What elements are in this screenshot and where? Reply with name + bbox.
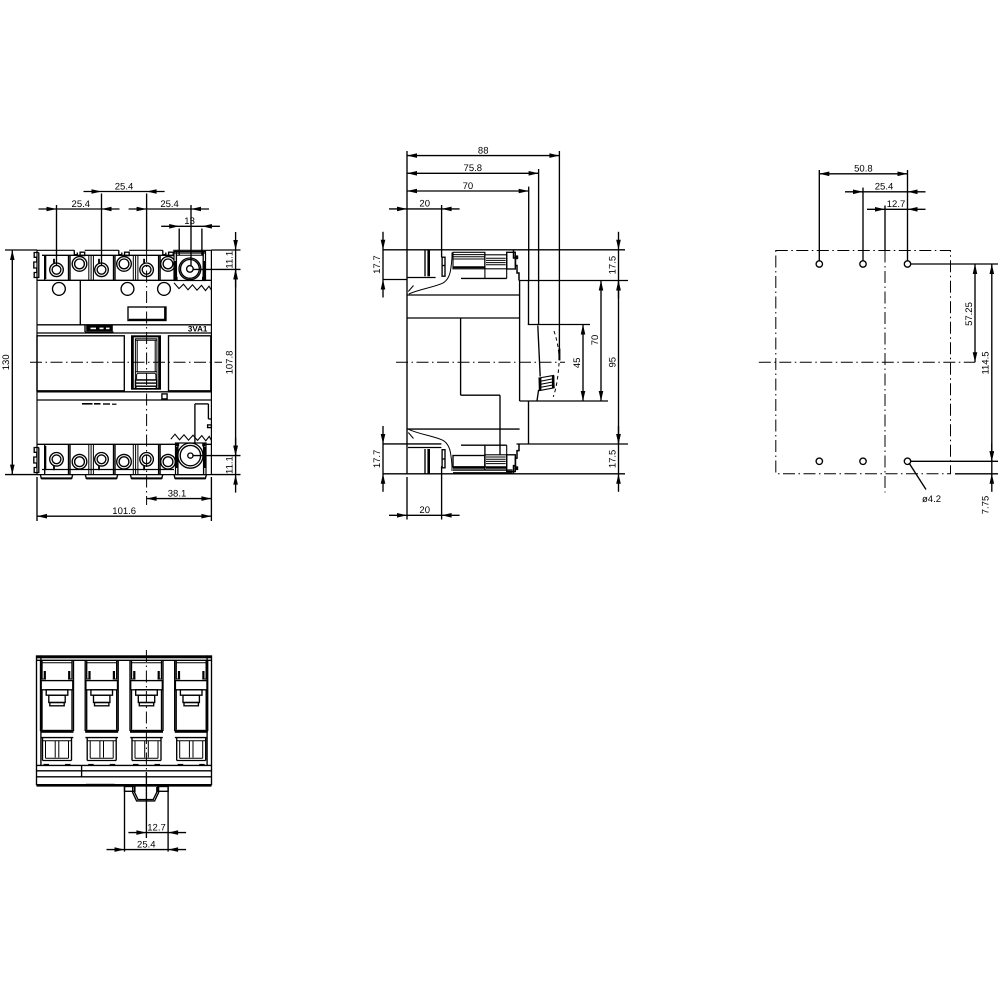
svg-text:25.4: 25.4 — [72, 199, 91, 210]
svg-text:130: 130 — [1, 354, 12, 370]
svg-text:11.1: 11.1 — [224, 456, 235, 474]
svg-text:25.4: 25.4 — [115, 181, 134, 192]
svg-text:45: 45 — [572, 358, 583, 369]
svg-text:ø4.2: ø4.2 — [922, 494, 941, 505]
svg-text:20: 20 — [419, 505, 430, 516]
svg-text:7.75: 7.75 — [981, 496, 992, 515]
svg-text:13: 13 — [184, 216, 195, 227]
svg-text:107.8: 107.8 — [224, 351, 235, 375]
svg-text:101.6: 101.6 — [112, 506, 136, 517]
svg-text:57.25: 57.25 — [964, 302, 975, 326]
svg-text:11.1: 11.1 — [224, 251, 235, 269]
svg-text:17.5: 17.5 — [607, 256, 618, 275]
svg-text:70: 70 — [463, 181, 474, 192]
svg-text:114.5: 114.5 — [981, 351, 992, 374]
svg-text:95: 95 — [607, 357, 618, 368]
svg-text:17.7: 17.7 — [372, 255, 383, 274]
svg-text:12.7: 12.7 — [147, 822, 166, 833]
svg-text:25.4: 25.4 — [160, 199, 179, 210]
svg-text:17.7: 17.7 — [372, 450, 383, 469]
svg-text:3VA1: 3VA1 — [188, 325, 208, 334]
svg-text:75.8: 75.8 — [464, 163, 483, 174]
svg-text:25.4: 25.4 — [875, 182, 894, 193]
svg-text:17.5: 17.5 — [607, 450, 618, 469]
svg-text:70: 70 — [590, 335, 601, 346]
svg-text:88: 88 — [478, 145, 489, 156]
svg-text:50.8: 50.8 — [854, 164, 873, 175]
svg-text:25.4: 25.4 — [137, 839, 156, 850]
svg-text:12.7: 12.7 — [887, 199, 906, 210]
svg-text:38.1: 38.1 — [168, 488, 187, 499]
svg-text:20: 20 — [419, 199, 430, 210]
